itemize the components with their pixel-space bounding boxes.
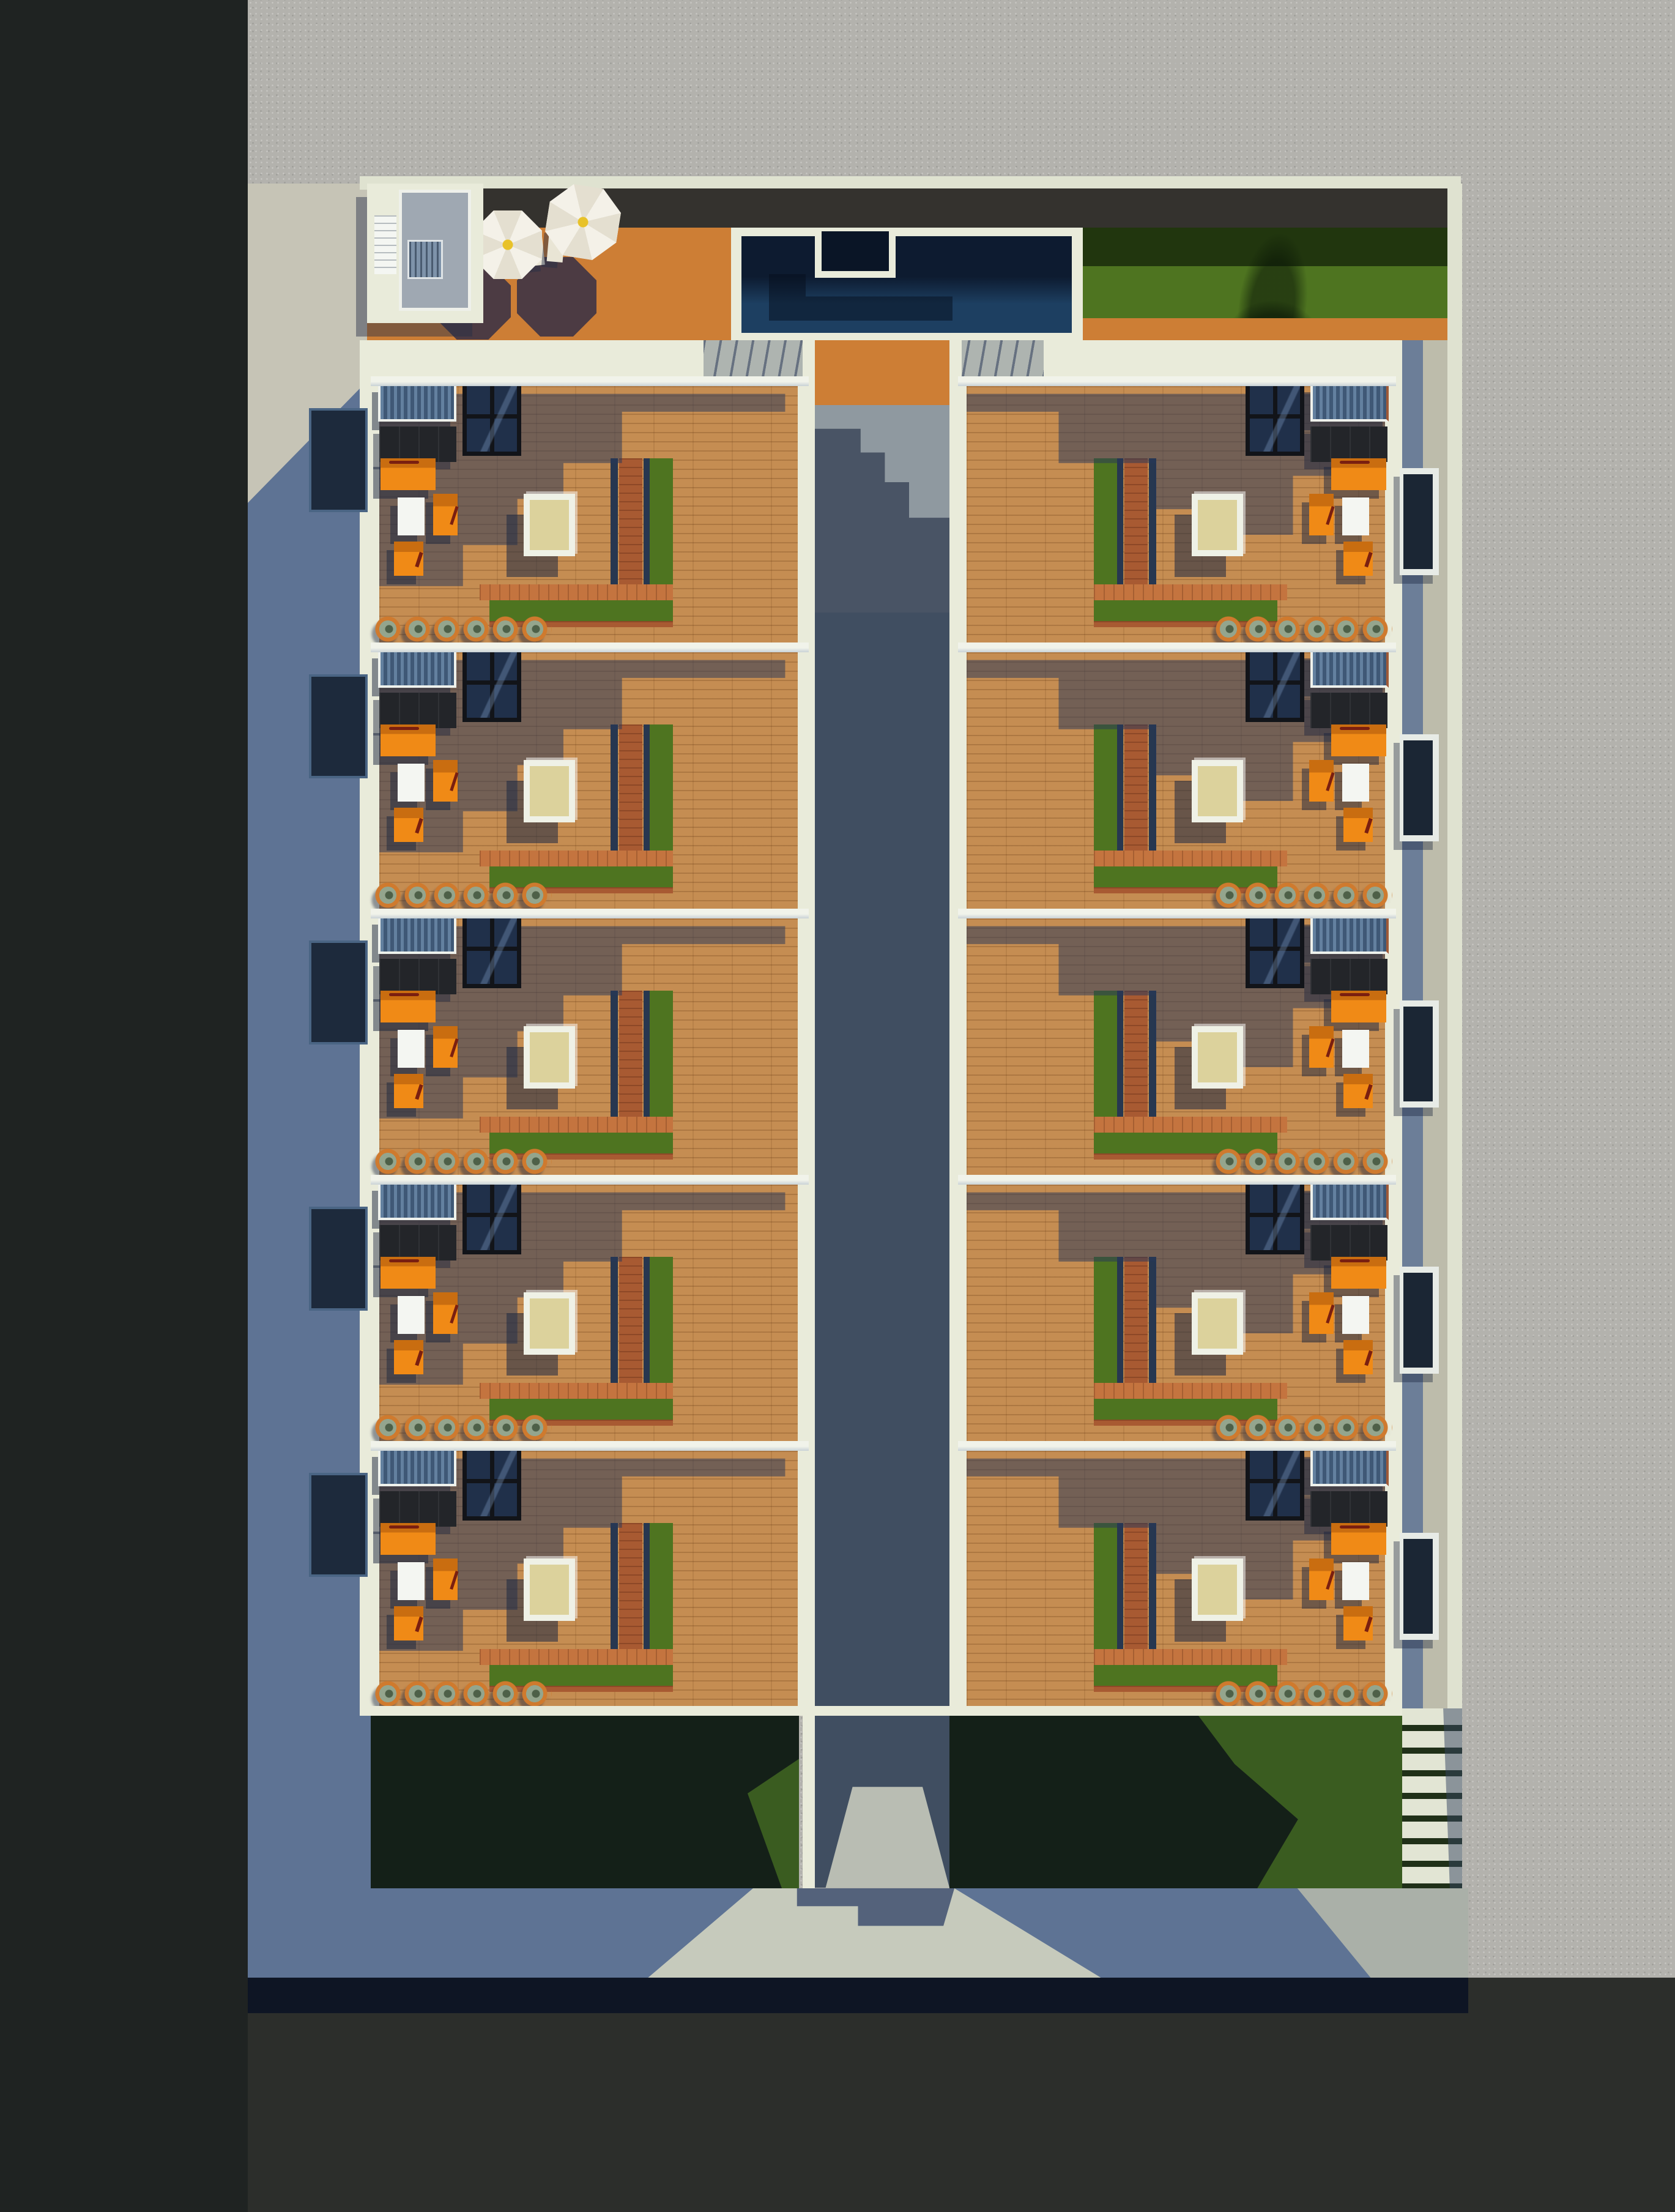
- louver-balcony: [1310, 1448, 1389, 1486]
- brick-path-horizontal: [1094, 851, 1287, 866]
- unit-parapet: [958, 1175, 1396, 1185]
- planter-row: [1215, 1415, 1392, 1440]
- louver-balcony: [1310, 1182, 1389, 1220]
- planter-wall-shadow: [1117, 1523, 1123, 1665]
- louver-balcony: [1310, 916, 1389, 954]
- lower-floor-window-box: [1400, 1533, 1439, 1640]
- bottom-pavement: [248, 1888, 1468, 1978]
- rowhouse-unit: [958, 642, 1396, 909]
- unit-parapet: [371, 1175, 809, 1185]
- planter-wall-shadow: [611, 724, 618, 851]
- brick-path-vertical: [1124, 1257, 1148, 1399]
- hedge-sunlit-area: [371, 1716, 799, 1888]
- unit-parapet: [371, 376, 809, 386]
- rowhouse-unit: [371, 1175, 809, 1441]
- planter-row: [1215, 1681, 1392, 1707]
- facade-panel: [379, 1491, 456, 1527]
- unit-parapet: [371, 909, 809, 918]
- deck-chair: [450, 1038, 458, 1057]
- bottom-hedge-right: [949, 1716, 1402, 1888]
- orange-awning: [433, 1292, 458, 1334]
- brick-path-vertical: [619, 991, 642, 1133]
- orange-awning: [394, 1340, 423, 1374]
- rowhouse-unit: [958, 376, 1396, 642]
- brick-path-horizontal: [480, 1383, 673, 1399]
- brick-path-horizontal: [480, 1649, 673, 1665]
- awning-seam: [389, 461, 420, 464]
- orange-awning: [1309, 494, 1334, 535]
- brick-path-vertical: [619, 1257, 642, 1399]
- deck-chair: [450, 1305, 458, 1324]
- stepped-path-shadow: [1435, 1708, 1462, 1892]
- bay-window-skylight: [1246, 642, 1304, 722]
- louver-balcony: [378, 916, 456, 954]
- brick-path-vertical: [1124, 1523, 1148, 1665]
- bay-window-skylight: [1246, 1441, 1304, 1521]
- orange-awning: [433, 760, 458, 802]
- lawn-strip-vertical: [1094, 991, 1117, 1133]
- orange-awning: [381, 1523, 436, 1555]
- louver-balcony: [378, 650, 456, 688]
- patio-table: [1342, 1030, 1369, 1068]
- orange-awning: [433, 1558, 458, 1600]
- planter-row: [374, 882, 552, 908]
- brick-path-vertical: [619, 458, 642, 600]
- lawn-strip-vertical: [1094, 458, 1117, 600]
- orange-awning: [1331, 1523, 1386, 1555]
- planter-wall-shadow: [644, 1523, 650, 1665]
- roof-skylight: [524, 1558, 575, 1621]
- brick-path-horizontal: [1094, 584, 1287, 600]
- planter-wall-shadow: [611, 1523, 618, 1649]
- planter-wall-shadow: [644, 991, 650, 1133]
- brick-path-horizontal: [1094, 1649, 1287, 1665]
- lower-floor-window-box: [1400, 468, 1439, 575]
- deck-chair: [415, 1617, 423, 1633]
- awning-seam: [1340, 1525, 1370, 1529]
- brick-path-horizontal: [480, 851, 673, 866]
- awning-seam: [1340, 993, 1370, 996]
- rowhouse-unit: [371, 642, 809, 909]
- rowhouse-unit: [958, 909, 1396, 1175]
- site-right-border: [1447, 184, 1462, 1891]
- planter-row: [1215, 1149, 1392, 1174]
- planter-row: [374, 1681, 552, 1707]
- bay-window-skylight: [1246, 909, 1304, 988]
- awning-seam: [389, 727, 420, 730]
- unit-parapet: [958, 642, 1396, 652]
- orange-awning: [1309, 1292, 1334, 1334]
- deck-chair: [415, 1350, 423, 1366]
- facade-panel: [1310, 426, 1387, 462]
- bay-window-skylight: [462, 642, 521, 722]
- lawn-strip-vertical: [650, 1523, 673, 1665]
- deck-chair: [415, 552, 423, 568]
- deck-chair: [1365, 552, 1373, 568]
- brick-path-vertical: [1124, 991, 1148, 1133]
- roof-skylight: [524, 1026, 575, 1089]
- bay-window-skylight: [1246, 376, 1304, 456]
- stepped-garden-path: [1402, 1708, 1462, 1892]
- orange-awning: [1331, 724, 1386, 756]
- orange-awning: [381, 991, 436, 1022]
- roof-skylight: [524, 1292, 575, 1355]
- deck-chair: [415, 1084, 423, 1100]
- site-plate-edge: [248, 1978, 1468, 2013]
- deck-chair: [450, 1571, 458, 1590]
- orange-awning: [394, 808, 423, 842]
- bay-window-skylight: [462, 1175, 521, 1254]
- orange-awning: [1343, 542, 1373, 576]
- facade-panel: [379, 426, 456, 462]
- facade-panel: [379, 1225, 456, 1261]
- lower-floor-window-box: [1400, 1267, 1439, 1374]
- planter-wall-shadow: [1117, 724, 1123, 866]
- planter-wall-shadow: [1117, 1257, 1123, 1399]
- orange-awning: [381, 724, 436, 756]
- planter-wall-shadow: [611, 458, 618, 584]
- awning-seam: [389, 1259, 420, 1262]
- bay-window-skylight: [462, 376, 521, 456]
- brick-path-vertical: [619, 724, 642, 866]
- unit-parapet: [371, 642, 809, 652]
- brick-path-vertical: [619, 1523, 642, 1665]
- planter-row: [374, 1415, 552, 1440]
- bay-window-skylight: [462, 1441, 521, 1521]
- orange-awning: [433, 494, 458, 535]
- awning-seam: [389, 1525, 420, 1529]
- deck-chair: [1365, 1350, 1373, 1366]
- lawn-strip-vertical: [650, 991, 673, 1133]
- awning-seam: [1340, 461, 1370, 464]
- lawn-strip-vertical: [1094, 1523, 1117, 1665]
- lawn-strip-vertical: [650, 458, 673, 600]
- bay-window-skylight: [1246, 1175, 1304, 1254]
- lawn-strip-vertical: [1094, 724, 1117, 866]
- lower-floor-bay-box: [309, 940, 368, 1045]
- orange-awning: [394, 1074, 423, 1108]
- awning-seam: [389, 993, 420, 996]
- bottom-hedge-left: [371, 1716, 799, 1888]
- patio-table: [1342, 1562, 1369, 1600]
- roof-skylight: [1192, 1558, 1243, 1621]
- planter-wall-shadow: [644, 458, 650, 600]
- awning-seam: [1340, 727, 1370, 730]
- orange-awning: [1331, 458, 1386, 490]
- brick-path-horizontal: [480, 584, 673, 600]
- planter-row: [1215, 616, 1392, 642]
- deck-chair: [1326, 772, 1334, 791]
- awning-seam: [1340, 1259, 1370, 1262]
- deck-chair: [415, 818, 423, 834]
- orange-awning: [1309, 760, 1334, 802]
- aerial-render-scene: [0, 0, 1675, 2212]
- brick-path-vertical: [1124, 724, 1148, 866]
- rowhouse-unit: [958, 1175, 1396, 1441]
- facade-panel: [1310, 1491, 1387, 1527]
- lower-floor-bay-box: [309, 1207, 368, 1311]
- building-bottom-parapet: [360, 1706, 1407, 1716]
- patio-table: [1342, 497, 1369, 535]
- planter-wall-shadow: [1117, 458, 1123, 600]
- planter-wall-shadow: [611, 1257, 618, 1383]
- planter-wall-shadow: [644, 1257, 650, 1399]
- patio-table: [398, 497, 425, 535]
- patio-table: [1342, 1296, 1369, 1334]
- rowhouse-unit: [371, 909, 809, 1175]
- deck-chair: [1326, 506, 1334, 525]
- facade-panel: [379, 693, 456, 728]
- roof-skylight: [1192, 1026, 1243, 1089]
- deck-chair: [1326, 1305, 1334, 1324]
- planter-row: [374, 1149, 552, 1174]
- rowhouse-unit: [958, 1441, 1396, 1707]
- deck-chair: [1326, 1571, 1334, 1590]
- facade-panel: [1310, 693, 1387, 728]
- planter-wall-shadow: [611, 991, 618, 1117]
- hedge-sunlit-area: [949, 1716, 1402, 1888]
- deck-chair: [450, 772, 458, 791]
- patio-table: [398, 1562, 425, 1600]
- lower-floor-window-box: [1400, 734, 1439, 841]
- facade-panel: [1310, 1225, 1387, 1261]
- orange-awning: [1309, 1558, 1334, 1600]
- lower-floor-bay-box: [309, 1473, 368, 1577]
- patio-table: [398, 1296, 425, 1334]
- orange-awning: [381, 1257, 436, 1289]
- orange-awning: [394, 1606, 423, 1640]
- unit-parapet: [958, 909, 1396, 918]
- roof-skylight: [1192, 760, 1243, 822]
- patio-table: [398, 764, 425, 802]
- lawn-strip-vertical: [650, 1257, 673, 1399]
- facade-panel: [379, 959, 456, 994]
- orange-awning: [1343, 808, 1373, 842]
- orange-awning: [394, 542, 423, 576]
- louver-balcony: [378, 384, 456, 422]
- planter-row: [374, 616, 552, 642]
- unit-parapet: [371, 1441, 809, 1451]
- orange-awning: [1309, 1026, 1334, 1068]
- orange-awning: [381, 458, 436, 490]
- louver-balcony: [378, 1182, 456, 1220]
- brick-path-horizontal: [1094, 1117, 1287, 1133]
- facade-panel: [1310, 959, 1387, 994]
- orange-awning: [1343, 1340, 1373, 1374]
- patio-table: [398, 1030, 425, 1068]
- lawn-strip-vertical: [1094, 1257, 1117, 1399]
- orange-awning: [1331, 1257, 1386, 1289]
- roof-skylight: [524, 760, 575, 822]
- rowhouse-unit: [371, 376, 809, 642]
- deck-chair: [1365, 1084, 1373, 1100]
- planter-wall-shadow: [644, 724, 650, 866]
- patio-table: [1342, 764, 1369, 802]
- deck-chair: [1365, 818, 1373, 834]
- unit-parapet: [958, 1441, 1396, 1451]
- brick-path-horizontal: [480, 1117, 673, 1133]
- lower-floor-bay-box: [309, 674, 368, 778]
- roof-skylight: [1192, 494, 1243, 556]
- roof-skylight: [1192, 1292, 1243, 1355]
- deck-chair: [450, 506, 458, 525]
- louver-balcony: [1310, 650, 1389, 688]
- deck-chair: [1365, 1617, 1373, 1633]
- brick-path-vertical: [1124, 458, 1148, 600]
- roof-skylight: [524, 494, 575, 556]
- lower-floor-window-box: [1400, 1000, 1439, 1108]
- planter-wall-shadow: [1117, 991, 1123, 1133]
- rowhouse-unit: [371, 1441, 809, 1707]
- lower-floor-bay-box: [309, 408, 368, 512]
- unit-parapet: [958, 376, 1396, 386]
- planter-row: [1215, 882, 1392, 908]
- deck-chair: [1326, 1038, 1334, 1057]
- lawn-strip-vertical: [650, 724, 673, 866]
- louver-balcony: [1310, 384, 1389, 422]
- orange-awning: [1331, 991, 1386, 1022]
- brick-path-horizontal: [1094, 1383, 1287, 1399]
- louver-balcony: [378, 1448, 456, 1486]
- orange-awning: [433, 1026, 458, 1068]
- bay-window-skylight: [462, 909, 521, 988]
- orange-awning: [1343, 1074, 1373, 1108]
- orange-awning: [1343, 1606, 1373, 1640]
